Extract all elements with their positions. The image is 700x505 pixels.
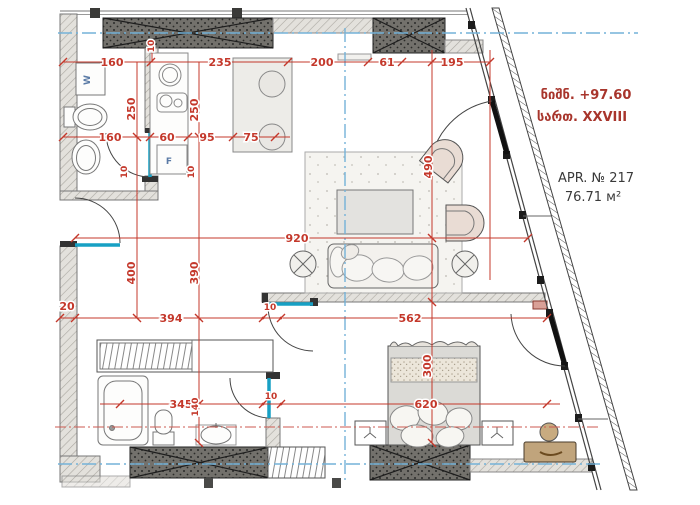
dim-label: 394 [160, 312, 183, 325]
hall-wardrobe [97, 340, 273, 372]
kitchen [150, 53, 188, 174]
title-block: ნიშნ. +97.60 სართ. XXVIII APR. № 217 76.… [537, 88, 634, 205]
living-room [290, 132, 484, 293]
entrance-door-arc [75, 198, 120, 243]
dim-label: 490 [422, 155, 435, 178]
area-label: 76.71 м² [565, 190, 621, 205]
dining-set [233, 58, 292, 152]
dim-label: 345 [170, 398, 193, 411]
dim-label: 10 [187, 166, 197, 179]
window-sill [338, 54, 371, 60]
dim-label: 10 [147, 40, 157, 53]
dim-label: 10 [265, 392, 278, 402]
dim-label: 390 [188, 261, 201, 284]
dim-label: 61 [379, 56, 394, 69]
floor-plan-drawing: 160 10 235 200 61 195 250 250 160 60 95 … [0, 0, 700, 505]
dim-label: 620 [415, 398, 438, 411]
pouf [540, 423, 558, 441]
bathroom2-sink [201, 426, 231, 444]
dim-label: 195 [441, 56, 464, 69]
outer-balcony-edge-top [60, 8, 468, 18]
dim-label: 140 [191, 398, 201, 417]
armchair-2 [446, 205, 484, 241]
dining-chair [259, 71, 285, 97]
dim-label: 95 [199, 131, 214, 144]
dim-label: 562 [399, 312, 422, 325]
balcony-door-leaf-top [492, 101, 507, 154]
dim-label: 10 [264, 303, 277, 313]
dim-label: 60 [159, 131, 175, 144]
bedroom-closet [268, 447, 325, 478]
dim-label: 400 [125, 261, 138, 284]
elevation-label: ნიშნ. +97.60 [541, 88, 632, 103]
dim-label: 300 [421, 354, 434, 377]
bottom-exterior-wall [130, 445, 592, 488]
dim-label: 250 [188, 98, 201, 121]
dim-label: 160 [99, 131, 122, 144]
side-table-left [290, 251, 316, 277]
fridge-label: F [166, 157, 172, 167]
coffee-table [337, 190, 413, 234]
dim-label: 235 [209, 56, 232, 69]
dim-label: 200 [311, 56, 334, 69]
balcony-door-leaf-bottom [550, 314, 565, 366]
dim-label: 250 [125, 97, 138, 120]
dim-label: 920 [286, 232, 309, 245]
toilet2-bowl [155, 410, 172, 434]
dim-label: 160 [101, 56, 124, 69]
nightstand-left [355, 421, 386, 445]
dim-label: 20 [59, 300, 75, 313]
bathroom2-fixtures [98, 376, 236, 445]
floor-label: სართ. XXVIII [537, 110, 627, 125]
ottoman-bench [524, 423, 576, 462]
apartment-number-label: APR. № 217 [558, 171, 634, 186]
side-table-right [452, 251, 478, 277]
floor-plan-page: 160 10 235 200 61 195 250 250 160 60 95 … [0, 0, 700, 505]
dim-label: 10 [120, 166, 130, 179]
dim-label: 75 [243, 131, 258, 144]
diagonal-facade [466, 8, 637, 490]
nightstand-right [482, 421, 513, 445]
washer-label: W [83, 75, 93, 85]
